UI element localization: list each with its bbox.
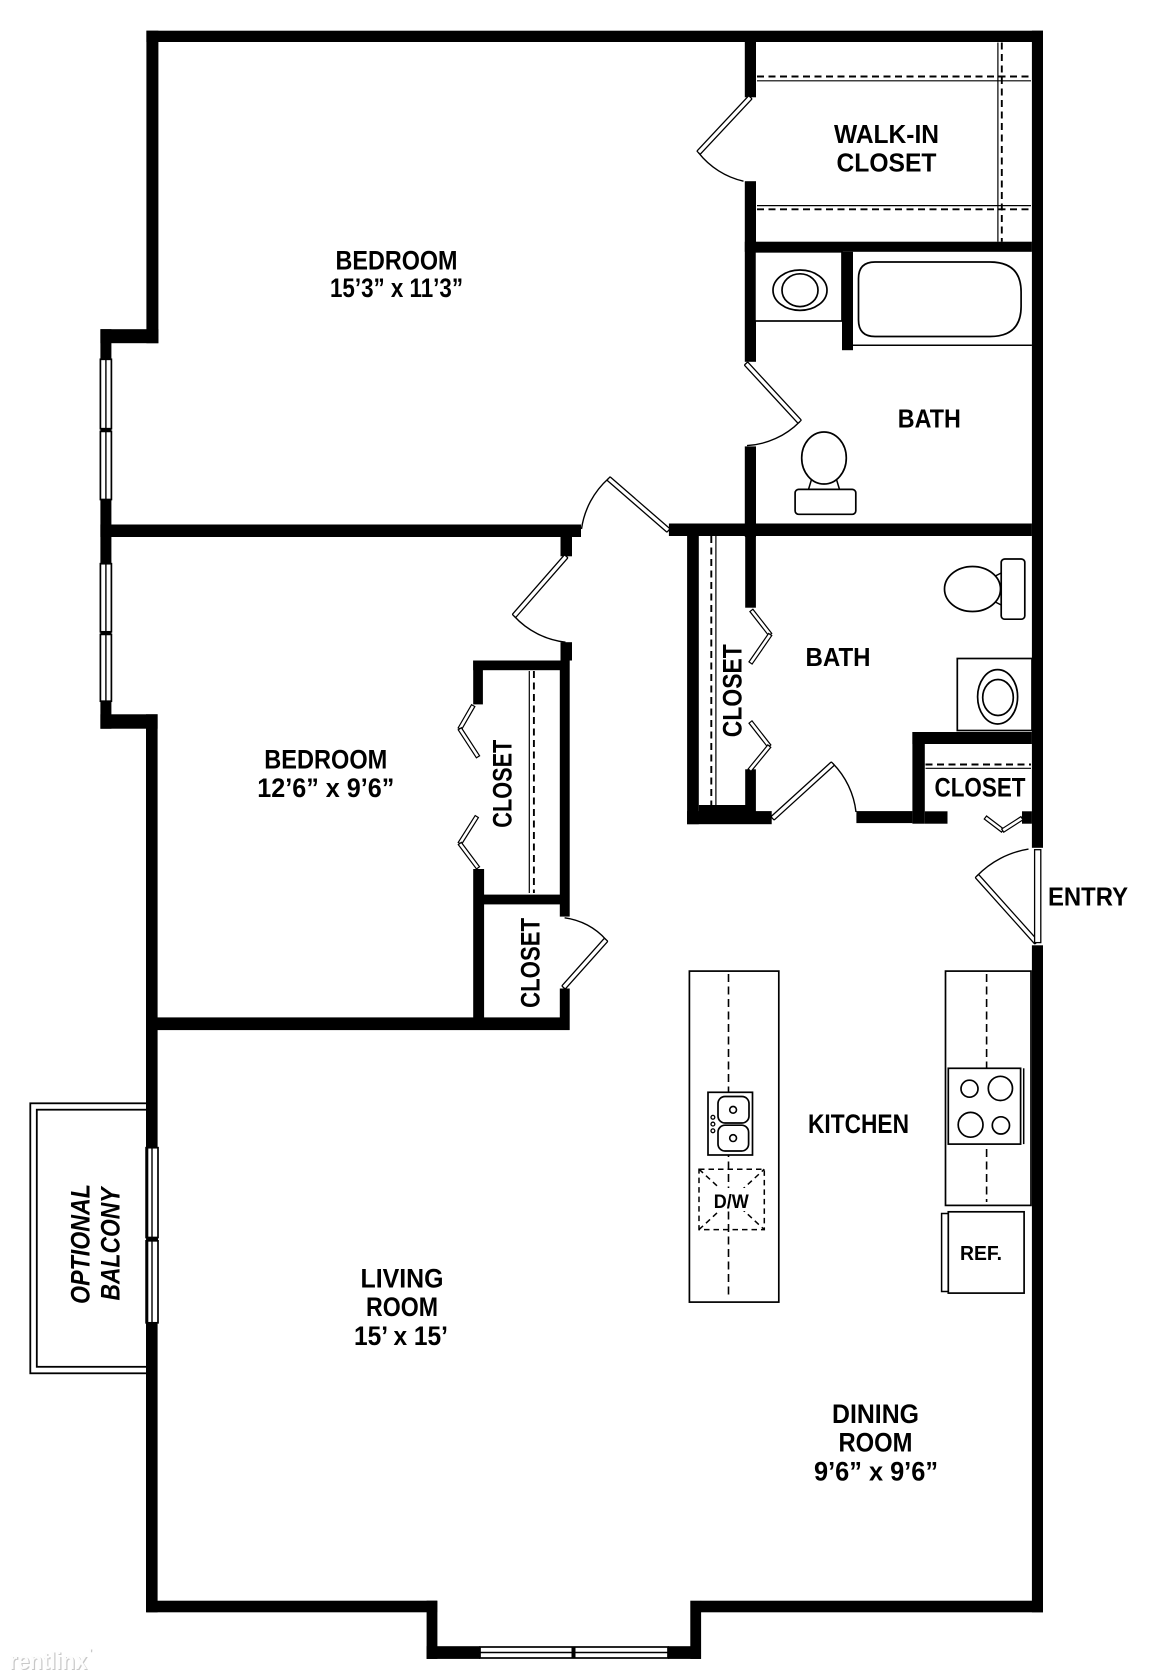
svg-text:rentlinx: rentlinx [9, 1648, 88, 1675]
svg-text:CLOSET: CLOSET [837, 148, 937, 178]
svg-text:DINING: DINING [832, 1399, 919, 1429]
svg-text:ROOM: ROOM [366, 1292, 438, 1322]
svg-text:9’6” x 9’6”: 9’6” x 9’6” [814, 1457, 938, 1487]
svg-text:WALK-IN: WALK-IN [834, 119, 939, 149]
svg-text:ROOM: ROOM [839, 1428, 913, 1458]
svg-text:15’3” x 11’3”: 15’3” x 11’3” [330, 273, 463, 303]
svg-text:12’6” x 9’6”: 12’6” x 9’6” [257, 773, 394, 803]
svg-text:LIVING: LIVING [361, 1264, 444, 1294]
svg-text:OPTIONALBALCONY: OPTIONALBALCONY [66, 1184, 126, 1304]
svg-text:KITCHEN: KITCHEN [808, 1109, 909, 1139]
svg-text:15’ x 15’: 15’ x 15’ [354, 1321, 448, 1351]
svg-text:BATH: BATH [898, 404, 961, 434]
svg-text:REF.: REF. [960, 1243, 1002, 1265]
svg-text:BEDROOM: BEDROOM [336, 246, 458, 276]
svg-text:D/W: D/W [714, 1191, 750, 1213]
svg-text:': ' [89, 1647, 92, 1659]
svg-text:BATH: BATH [806, 642, 871, 672]
svg-text:CLOSET: CLOSET [935, 773, 1026, 803]
svg-text:ENTRY: ENTRY [1048, 882, 1128, 912]
svg-text:CLOSET: CLOSET [718, 644, 748, 737]
svg-text:BEDROOM: BEDROOM [264, 745, 387, 775]
svg-text:CLOSET: CLOSET [488, 740, 518, 828]
svg-text:CLOSET: CLOSET [516, 918, 546, 1008]
